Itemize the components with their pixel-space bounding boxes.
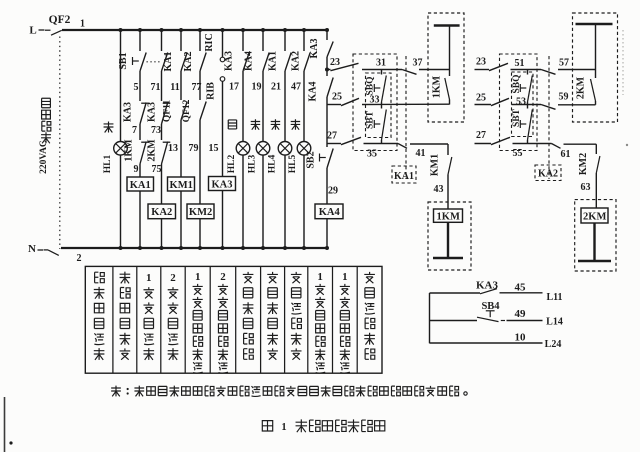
svg-text:SBQ: SBQ	[366, 76, 376, 95]
svg-text:KA1: KA1	[268, 51, 279, 71]
svg-text:17: 17	[229, 82, 239, 93]
svg-text:L: L	[29, 25, 36, 37]
svg-text:SBT: SBT	[512, 108, 522, 127]
svg-text:45: 45	[515, 282, 527, 294]
svg-text:1: 1	[146, 272, 152, 284]
svg-text:KM1: KM1	[430, 154, 441, 176]
svg-text:1: 1	[342, 271, 348, 283]
svg-text:23: 23	[476, 57, 486, 68]
svg-text:63: 63	[581, 182, 591, 193]
svg-text:L14: L14	[546, 317, 563, 328]
svg-text:5: 5	[134, 82, 139, 93]
svg-text:KA1: KA1	[130, 180, 151, 191]
svg-text:KM2: KM2	[578, 153, 589, 175]
svg-text:75: 75	[152, 164, 162, 175]
svg-text:15: 15	[209, 143, 219, 154]
svg-text:KA1: KA1	[163, 52, 174, 72]
svg-text:SBQ: SBQ	[512, 74, 522, 93]
svg-text:KA3: KA3	[309, 39, 320, 59]
svg-text:HL4: HL4	[268, 155, 278, 174]
svg-text:21: 21	[271, 82, 281, 93]
svg-text:KM1: KM1	[170, 180, 193, 191]
svg-text:KA4: KA4	[319, 207, 341, 218]
svg-text:QF2: QF2	[49, 14, 71, 26]
svg-text:KA3: KA3	[224, 51, 235, 71]
svg-text:27: 27	[476, 130, 486, 141]
svg-text:59: 59	[559, 92, 569, 103]
svg-text:9: 9	[134, 164, 139, 175]
svg-text:13: 13	[168, 143, 178, 154]
svg-text:2KM: 2KM	[147, 139, 158, 162]
svg-text:7: 7	[132, 125, 137, 136]
svg-text:SB1: SB1	[118, 52, 129, 69]
svg-text:2KM: 2KM	[583, 211, 606, 222]
svg-text:KA3: KA3	[212, 179, 233, 190]
svg-text:41: 41	[416, 148, 426, 159]
svg-text:55: 55	[513, 148, 523, 159]
svg-text:2KM: 2KM	[576, 76, 587, 99]
svg-text:SB4: SB4	[481, 301, 500, 312]
svg-text:SB2: SB2	[306, 151, 317, 168]
svg-text:KA3: KA3	[123, 102, 134, 122]
svg-text:43: 43	[434, 184, 444, 195]
svg-text:KA3: KA3	[147, 102, 158, 122]
svg-text:1KM: 1KM	[124, 139, 135, 162]
svg-text:2: 2	[77, 253, 82, 264]
svg-text:L24: L24	[545, 339, 562, 350]
svg-text:57: 57	[559, 58, 569, 69]
svg-text:KA3: KA3	[476, 280, 499, 292]
svg-text:11: 11	[170, 82, 179, 93]
svg-text:RIC: RIC	[204, 33, 215, 51]
svg-text:HL1: HL1	[103, 155, 113, 174]
svg-text:31: 31	[376, 58, 386, 69]
svg-text:77: 77	[192, 82, 202, 93]
svg-text:KA2: KA2	[538, 169, 558, 180]
svg-text:23: 23	[330, 57, 340, 68]
svg-text:KA4: KA4	[308, 82, 319, 102]
svg-text:1KM: 1KM	[437, 211, 460, 222]
svg-text:QF11: QF11	[163, 100, 173, 122]
svg-text:25: 25	[332, 92, 342, 103]
svg-text:1: 1	[281, 422, 286, 433]
svg-text:10: 10	[515, 332, 527, 344]
svg-text:HL3: HL3	[248, 155, 258, 174]
svg-text:HL5: HL5	[288, 155, 298, 174]
svg-text:KA2: KA2	[151, 207, 172, 218]
svg-text:QF12: QF12	[182, 99, 192, 122]
svg-text:53: 53	[516, 97, 526, 108]
svg-text:73: 73	[151, 125, 161, 136]
svg-text:1: 1	[80, 19, 85, 30]
svg-text:37: 37	[413, 58, 423, 69]
svg-text:51: 51	[515, 58, 525, 69]
svg-text:1: 1	[317, 271, 323, 283]
svg-text:71: 71	[151, 82, 161, 93]
svg-text:29: 29	[328, 186, 338, 197]
svg-text:27: 27	[327, 131, 337, 142]
svg-text:61: 61	[561, 149, 571, 160]
svg-text:1: 1	[195, 271, 201, 283]
svg-text:KM2: KM2	[189, 207, 212, 218]
svg-text:KA2: KA2	[291, 51, 302, 71]
svg-text:KA2: KA2	[183, 52, 194, 72]
svg-text:19: 19	[252, 82, 262, 93]
svg-text:L11: L11	[546, 292, 562, 303]
svg-text:2: 2	[220, 271, 226, 283]
svg-text:47: 47	[291, 82, 301, 93]
svg-text:79: 79	[189, 143, 199, 154]
svg-text:KA4: KA4	[244, 51, 255, 71]
svg-text:HL2: HL2	[227, 155, 237, 174]
svg-text:49: 49	[515, 308, 527, 320]
svg-text:KA1: KA1	[394, 171, 414, 182]
svg-text:25: 25	[476, 93, 486, 104]
svg-text:1KM: 1KM	[432, 75, 443, 98]
svg-text:RIB: RIB	[206, 82, 217, 100]
svg-text:SBT: SBT	[366, 110, 376, 129]
svg-text:N: N	[28, 243, 36, 255]
svg-text:220VAC: 220VAC	[39, 140, 49, 174]
svg-text:2: 2	[170, 272, 176, 284]
